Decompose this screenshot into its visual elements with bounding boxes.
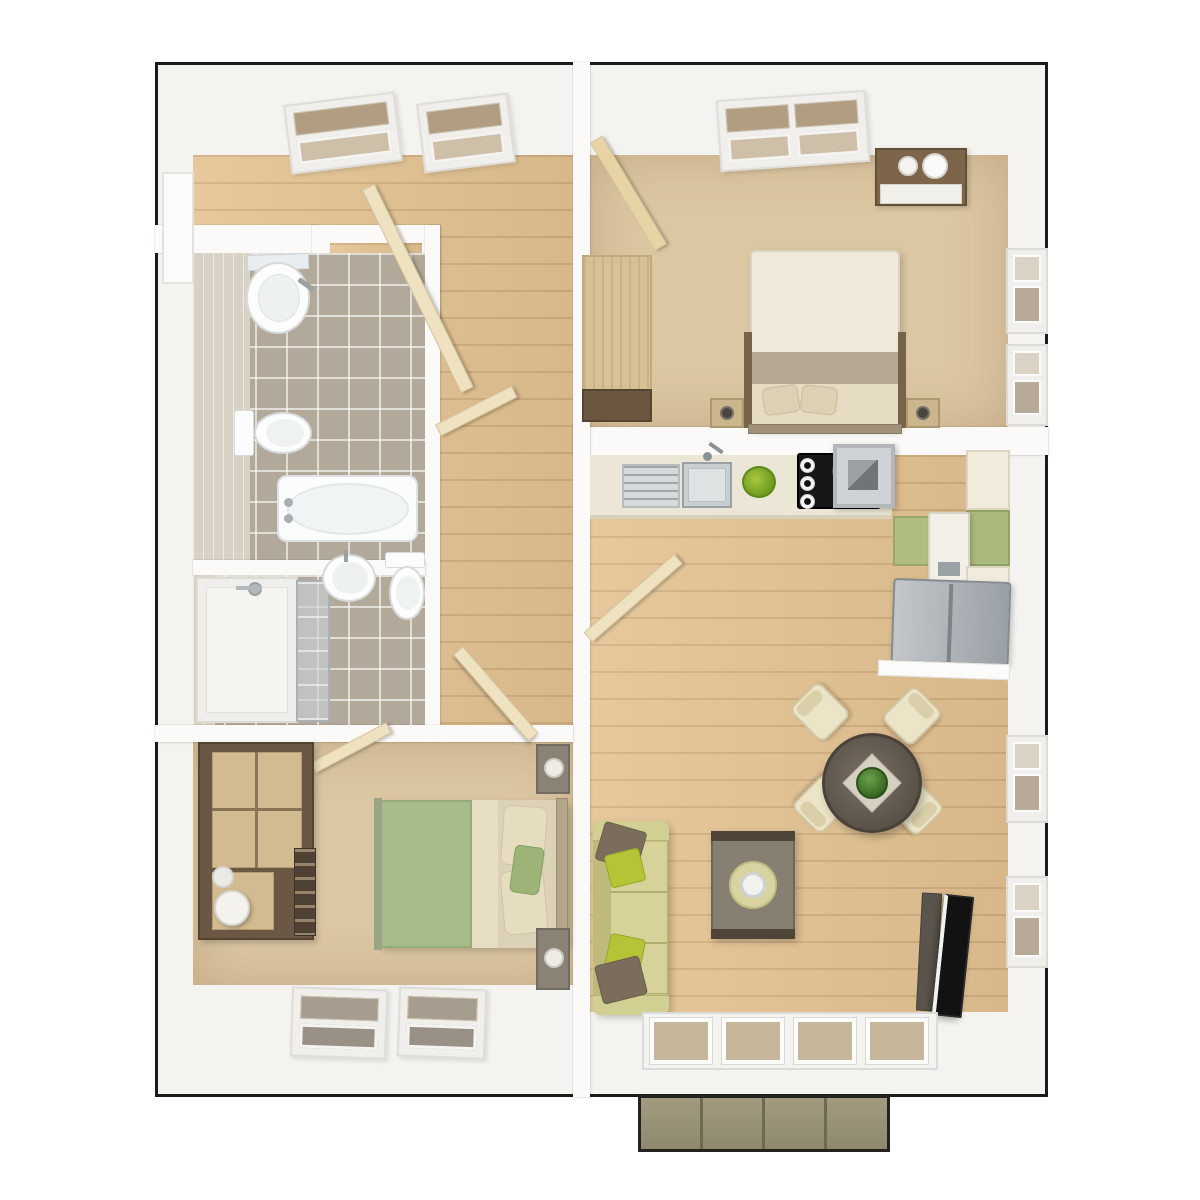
bedroom1-wardrobe [582,255,652,391]
bedroom1-window-part [1013,255,1041,282]
shower-tray-inner [206,587,288,713]
bed1-rail [744,332,752,428]
bathroom-toilet-cistern [234,410,254,456]
bed1-rail [898,332,906,428]
bed2-rail [374,798,382,950]
ensuite-sink-basin [332,562,368,594]
bedroom1-window-part [1013,380,1041,415]
hall-skylight-part [297,129,393,164]
bowl-inner [740,872,766,898]
living-window [1006,876,1048,968]
nightstand-lamp [544,758,564,778]
cooktop-knob [800,494,815,509]
shower-arm [236,586,262,590]
bedroom1-dresser-drawers [880,184,962,204]
bathroom-wall-tiles [193,253,250,560]
bedroom2-skylight-part [300,996,379,1022]
bedroom1-window-part [1013,286,1041,323]
nightstand-lamp [720,406,734,420]
bedroom2-skylight [397,986,487,1059]
living-window-part [1013,883,1041,912]
bedroom2-cabinet [294,848,316,936]
wardrobe-divider [255,752,258,868]
kitchen-plant [742,466,776,498]
bathtub-tap [284,514,293,523]
bathroom-toilet-seat [266,419,304,447]
bedroom1-dresser-mirror [922,153,948,179]
porch-divider [824,1098,827,1149]
kitchen-cabinet [966,450,1010,510]
bedroom1-window [1006,248,1048,334]
porch-divider [762,1098,765,1149]
extractor-hood-duct [848,460,878,490]
bed2-fold [472,800,498,948]
bedroom1-skylight [716,90,871,172]
bedroom1-wardrobe-base [582,389,652,422]
hall-skylight [283,91,403,174]
kitchen-tap [703,452,712,461]
bedroom2-skylight-part [407,996,478,1021]
bedroom2-skylight-part [299,1024,378,1051]
kitchen-sink-basin [688,468,726,502]
bedroom1-skylight-part [794,99,859,127]
hall-skylight-part [426,103,502,135]
living-window [1006,735,1048,823]
hall-skylight-part [430,130,506,163]
kitchen-drainboard [622,464,680,508]
table-plant [856,767,888,799]
cooktop-knob [800,458,815,473]
bedroom2-lamp [212,866,234,888]
bathtub-basin [287,483,409,535]
patio-door-pane [650,1018,712,1064]
bathroom-sink-basin [258,274,300,322]
patio-door-pane [722,1018,784,1064]
living-window-part [1013,742,1041,770]
bedroom1-dresser-lamp [898,156,918,176]
bathtub-tap [284,498,293,507]
nightstand-lamp [544,948,564,968]
shower-glass [296,580,330,722]
cooktop-knob [800,476,815,491]
bed2-duvet [378,800,472,948]
floor-plan [0,0,1200,1200]
bedroom1-skylight-part [725,104,790,132]
bedroom2-skylight [290,986,388,1059]
living-window-part [1013,774,1041,812]
kitchen-appliance-panel [938,562,960,576]
patio-door-pane [794,1018,856,1064]
nightstand-lamp [916,406,930,420]
bed1-headboard [748,424,902,434]
bedroom1-window-part [1013,351,1041,376]
bedroom1-skylight-part [796,128,861,158]
bedroom1-skylight-part [727,133,792,163]
coffee-table-edge [711,929,795,939]
bedroom2-skylight-part [406,1024,477,1051]
hall-skylight [416,93,516,174]
bed1-pillow [761,384,801,417]
bed1-fold [750,352,900,384]
central-wall [573,62,590,1097]
ensuite-toilet-seat [396,576,420,610]
coffee-table-edge [711,831,795,841]
porch-divider [700,1098,703,1149]
patio-door-pane [866,1018,928,1064]
kitchen-cabinet-green [966,510,1010,566]
bedroom2-lamp [214,890,250,926]
living-window-part [1013,916,1041,957]
ensuite-tap [344,550,348,562]
landing-door [162,172,194,284]
bed1-pillow [800,384,839,416]
bedroom1-window [1006,344,1048,426]
